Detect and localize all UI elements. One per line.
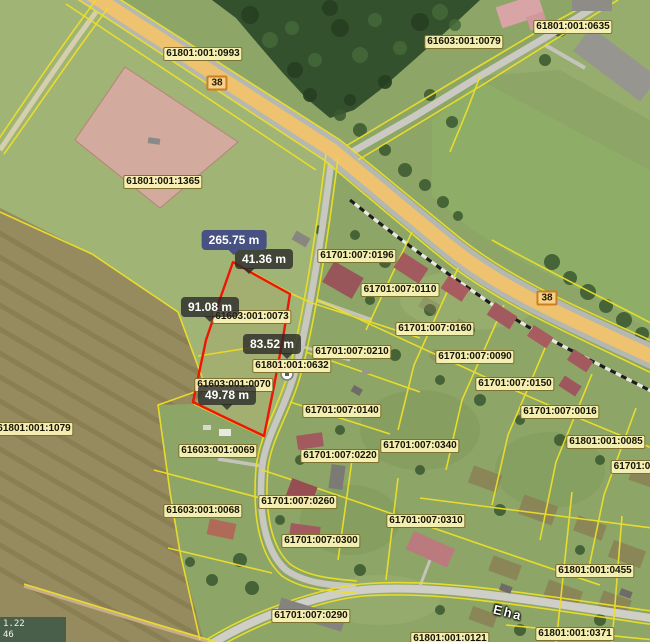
map-viewport[interactable]: 61801:001:099361603:001:007961801:001:06…	[0, 0, 650, 642]
map-canvas[interactable]	[0, 0, 650, 642]
coordinate-line1: 1.22	[3, 619, 66, 630]
coordinate-readout: 1.22 46	[0, 617, 66, 642]
coordinate-line2: 46	[3, 630, 66, 641]
poi-circle-icon	[281, 368, 293, 380]
